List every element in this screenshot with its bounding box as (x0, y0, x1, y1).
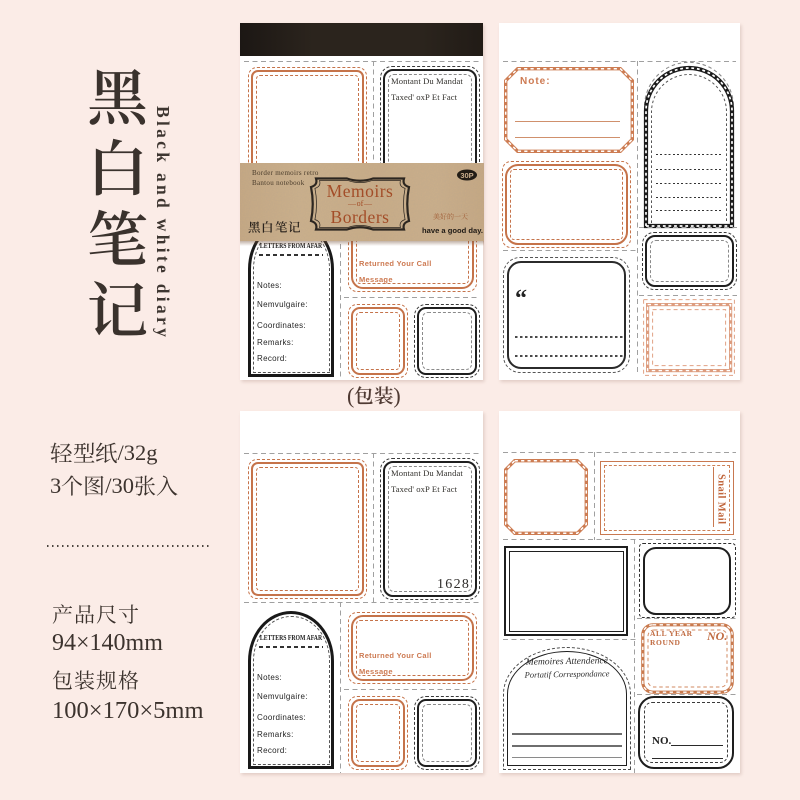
svg-text:30P: 30P (460, 171, 473, 180)
